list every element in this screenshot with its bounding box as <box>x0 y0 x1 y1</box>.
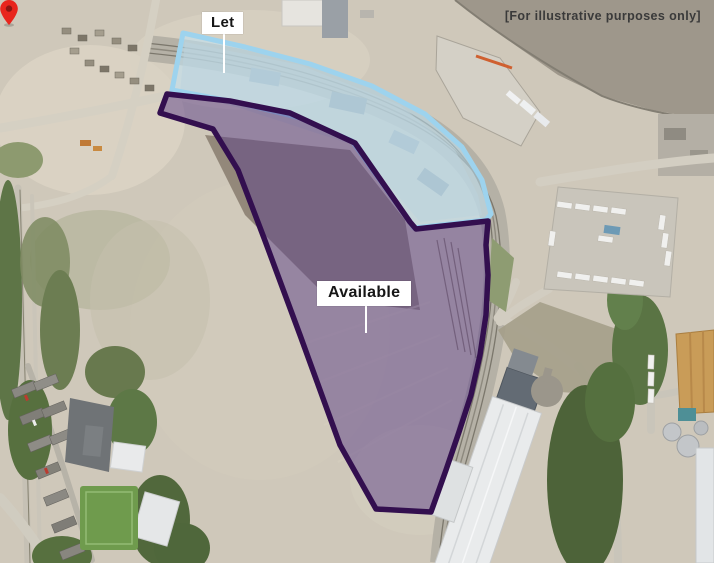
available-label: Available <box>317 281 411 306</box>
pin-body <box>0 0 18 25</box>
available-label-leader <box>365 306 367 333</box>
disclaimer-text: [For illustrative purposes only] <box>0 9 701 23</box>
site-plan-map: Let Available [For illustrative purposes… <box>0 0 714 563</box>
location-pin-icon <box>0 0 18 27</box>
let-label-leader <box>223 33 225 73</box>
pin-dot <box>6 5 12 11</box>
